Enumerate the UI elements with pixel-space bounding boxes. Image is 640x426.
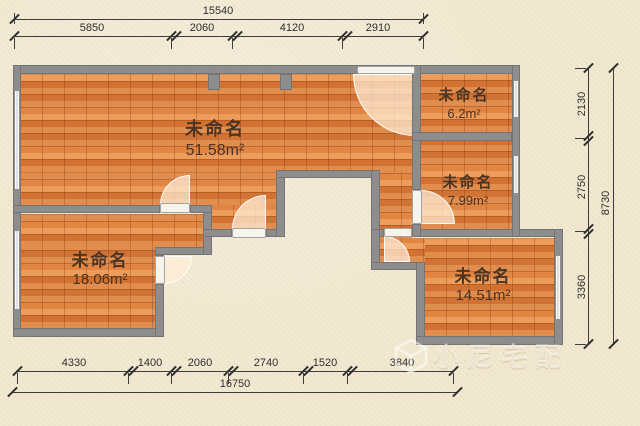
wall [416,262,425,345]
dim-top-total: 15540 [203,5,234,17]
dim-right-total: 8730 [600,191,612,215]
dim-right-seg: 2130 [576,92,588,116]
dim-top-seg: 2910 [366,22,390,34]
wall-stub [208,74,220,90]
dim-ext [171,38,172,49]
room-name: 未命名 [185,118,245,141]
room-area: 51.58m² [185,141,245,161]
cube-logo-icon [394,338,428,374]
dim-ext [423,13,424,24]
floor-plan: 未命名 51.58m² 未命名 6.2m² 未命名 7.99m² 未命名 18.… [0,0,640,426]
room-name: 未命名 [72,250,129,271]
dim-bottom-seg: 2740 [254,357,278,369]
wall [276,170,285,237]
room-area: 6.2m² [438,106,489,122]
dim-ext [575,68,586,69]
door-leaf[interactable] [232,228,266,238]
dim-line [613,68,614,344]
dim-ext [347,373,348,384]
room-floor-main[interactable] [21,172,276,205]
wall [13,328,164,337]
wall-stub [280,74,292,90]
room-label: 未命名 51.58m² [185,118,245,161]
room-label: 未命名 6.2m² [438,87,489,122]
dim-bottom-seg: 1520 [313,357,337,369]
window[interactable] [14,230,20,310]
room-label: 未命名 18.06m² [72,250,129,290]
watermark: 小尼宅配 [394,337,569,374]
room-area: 7.99m² [442,193,493,209]
dim-line [17,371,453,372]
room-name: 未命名 [442,174,493,193]
door-leaf[interactable] [384,228,412,237]
door-leaf[interactable] [412,190,422,224]
dim-ext [303,373,304,384]
dim-ext [575,344,586,345]
dim-ext [17,373,18,384]
window[interactable] [14,90,20,190]
wall [412,65,421,190]
dim-ext [171,373,172,384]
wall [412,229,563,237]
dim-ext [14,13,15,24]
wall [412,132,512,141]
dim-line [14,19,423,20]
wall [155,284,164,337]
dim-bottom-seg: 2060 [188,357,212,369]
door-leaf[interactable] [357,66,415,74]
dim-top-seg: 5850 [80,22,104,34]
wall [190,205,212,213]
dim-ext [575,138,586,139]
door-arc [164,256,192,284]
dim-ext [453,373,454,384]
window[interactable] [513,155,519,194]
wall [412,224,421,237]
wall [203,229,232,237]
room-label: 未命名 14.51m² [455,266,512,306]
dim-bottom-seg: 4330 [62,357,86,369]
dim-line [12,392,457,393]
room-floor-left[interactable] [21,214,203,247]
room-area: 14.51m² [455,287,512,306]
dim-ext [14,38,15,49]
watermark-text: 小尼宅配 [433,337,569,374]
wall [13,65,520,74]
dim-top-seg: 2060 [190,22,214,34]
dim-line [588,68,589,344]
dim-ext [423,38,424,49]
dim-bottom-seg: 1400 [138,357,162,369]
door-leaf[interactable] [155,256,165,284]
wall [276,170,380,178]
dim-line [14,36,423,37]
room-area: 18.06m² [72,271,129,290]
dim-bottom-total: 16750 [220,378,251,390]
dim-ext [128,373,129,384]
dim-ext [342,38,343,49]
room-name: 未命名 [438,87,489,106]
dim-top-seg: 4120 [280,22,304,34]
dim-ext [575,231,586,232]
window[interactable] [513,80,519,118]
dim-ext [232,38,233,49]
dim-right-seg: 3360 [576,275,588,299]
wall [371,170,380,237]
room-name: 未命名 [455,266,512,287]
window[interactable] [555,255,561,320]
room-label: 未命名 7.99m² [442,174,493,209]
door-leaf[interactable] [160,203,190,213]
wall [13,205,160,213]
dim-right-seg: 2750 [576,175,588,199]
